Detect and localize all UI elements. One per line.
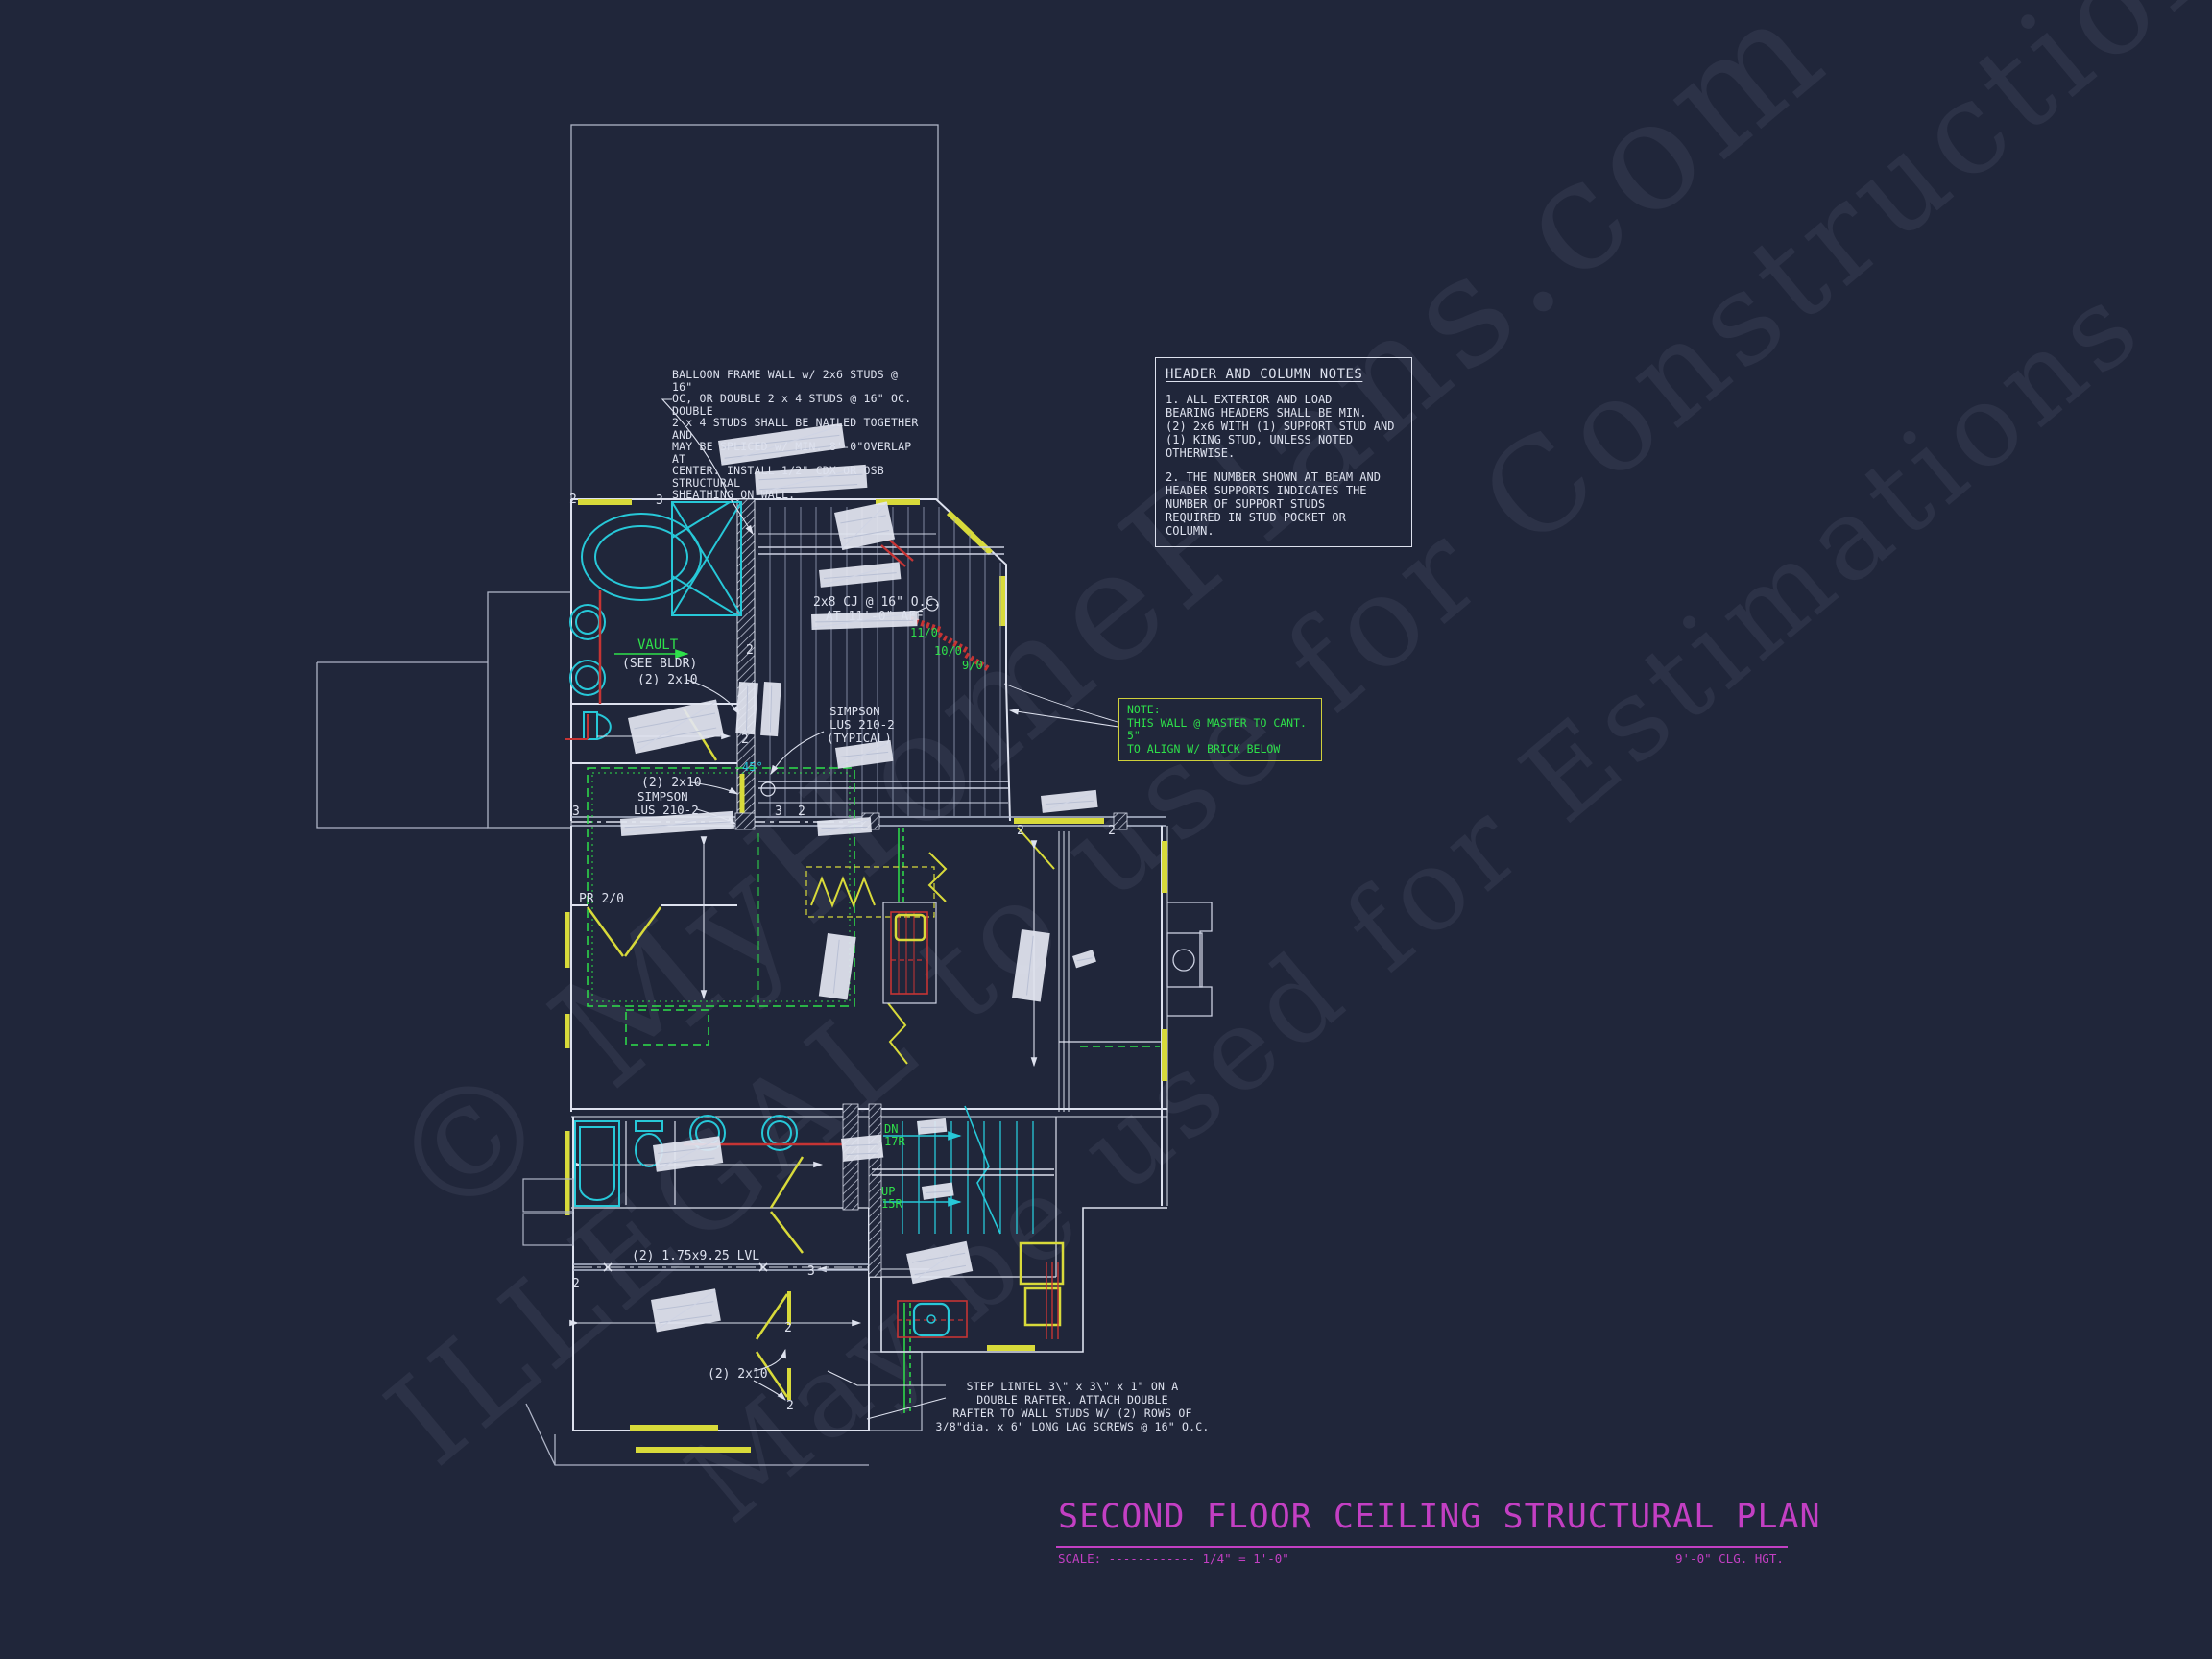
height-11-0: 11/0 [910, 626, 938, 639]
stud-marker: 3 [807, 1264, 815, 1279]
height-9-0: 9/0 [962, 659, 983, 672]
center-fireplace [883, 902, 936, 1003]
stud-marker: 2 [1017, 824, 1024, 838]
lus-label: LUS 210-2 [829, 717, 895, 732]
wall-hatch-stair [869, 1104, 881, 1277]
title-underline [1056, 1546, 1788, 1548]
stairs-up-risers: 15R [881, 1197, 902, 1211]
wall-hatch-seg [1114, 813, 1127, 829]
stud-marker: 2 [798, 805, 805, 819]
vault-label: VAULT [637, 637, 679, 653]
angle-45-label: 45° [742, 760, 763, 774]
stairs-dn-label: DN [884, 1122, 898, 1136]
lower-left-doors [757, 1291, 789, 1400]
hanger-circle2 [761, 782, 775, 796]
stud-marker: 2 [1108, 824, 1116, 838]
stairs-up-label: UP [881, 1185, 895, 1198]
stud-marker: 2 [786, 1399, 794, 1413]
redacted-labels [620, 423, 1098, 1333]
plan-scale: SCALE: ------------ 1/4" = 1'-0" [1058, 1551, 1289, 1566]
right-wall-features [1165, 841, 1212, 1081]
2x10-label-2: (2) 2x10 [641, 776, 702, 790]
cj-label: 2x8 CJ @ 16" O.C. [813, 595, 941, 610]
cad-sheet: © MyHomePlans.com ILLEGAL to use for Con… [0, 0, 2212, 1659]
simpson-label-2: SIMPSON [637, 789, 688, 804]
2x10-label-3: (2) 2x10 [708, 1367, 768, 1382]
stud-marker: 3 [775, 805, 782, 819]
2x10-label-vault: (2) 2x10 [637, 673, 698, 687]
cj-aff-label: AT 11'-0" AFF [826, 610, 924, 624]
stud-marker: 2 [784, 1321, 792, 1335]
wall-hatch-seg [735, 813, 755, 829]
stairs [872, 1106, 1054, 1234]
step-lintel-note: STEP LINTEL 3\" x 3\" x 1" ON A DOUBLE R… [924, 1380, 1221, 1433]
plan-title: SECOND FLOOR CEILING STRUCTURAL PLAN [1058, 1498, 1797, 1536]
ceiling-height: 9'-0" CLG. HGT. [1675, 1551, 1784, 1566]
stud-marker: 2 [572, 1277, 580, 1291]
stud-marker: 2 [569, 493, 577, 507]
hall-doors [771, 1157, 803, 1253]
stairs-dn-risers: 17R [884, 1135, 905, 1148]
header-note-2: 2. THE NUMBER SHOWN AT BEAM AND HEADER S… [1166, 470, 1402, 538]
pr-double-doors [588, 907, 661, 956]
header-notes-title: HEADER AND COLUMN NOTES [1166, 367, 1402, 382]
stud-marker: 3 [656, 493, 663, 508]
stud-marker: 3 [572, 805, 580, 819]
lus-label-2: LUS 210-2 [634, 803, 699, 817]
stud-marker: 2 [746, 643, 754, 658]
height-10-0: 10/0 [934, 644, 962, 658]
balloon-frame-note: BALLOON FRAME WALL w/ 2x6 STUDS @ 16" OC… [672, 369, 924, 501]
simpson-label: SIMPSON [829, 704, 880, 718]
see-bldr-label: (SEE BLDR) [622, 657, 697, 671]
lvl-beam-label: (2) 1.75x9.25 LVL [632, 1249, 759, 1263]
header-column-notes-box: HEADER AND COLUMN NOTES 1. ALL EXTERIOR … [1155, 357, 1412, 547]
pr-door-label: PR 2/0 [579, 892, 624, 906]
header-note-1: 1. ALL EXTERIOR AND LOAD BEARING HEADERS… [1166, 393, 1402, 460]
stud-marker: 2 [741, 733, 749, 747]
typical-label: (TYPICAL) [827, 731, 892, 745]
cant-wall-note: NOTE: THIS WALL @ MASTER TO CANT. 5" TO … [1118, 698, 1322, 761]
